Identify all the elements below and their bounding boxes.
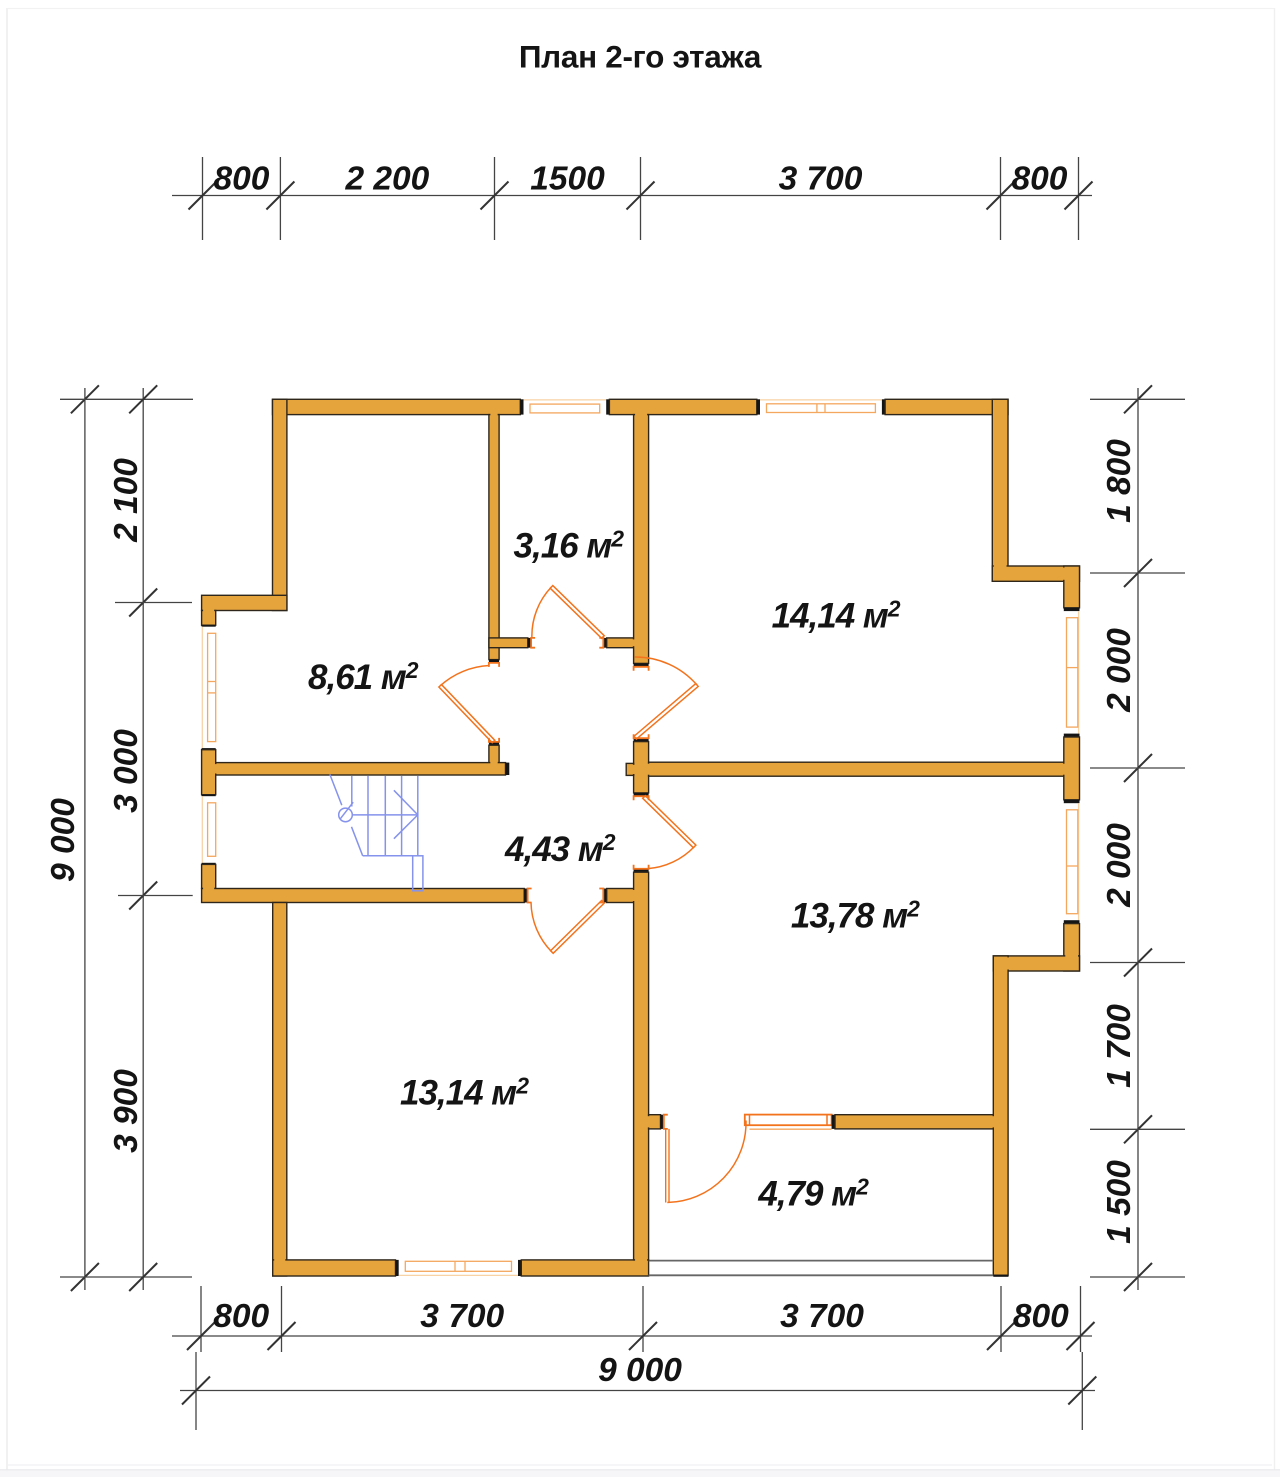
svg-text:13,14 м2: 13,14 м2	[400, 1072, 529, 1112]
svg-text:3 900: 3 900	[108, 1069, 145, 1153]
svg-text:3 000: 3 000	[108, 729, 145, 813]
svg-text:3 700: 3 700	[780, 1298, 864, 1335]
svg-text:3 700: 3 700	[779, 161, 863, 198]
svg-text:2 200: 2 200	[344, 161, 429, 198]
svg-text:800: 800	[1012, 161, 1068, 198]
svg-text:800: 800	[1013, 1298, 1069, 1335]
svg-text:4,43 м2: 4,43 м2	[504, 829, 616, 869]
svg-text:1 700: 1 700	[1101, 1004, 1138, 1088]
svg-text:8,61 м2: 8,61 м2	[308, 657, 419, 697]
svg-text:14,14 м2: 14,14 м2	[772, 596, 901, 636]
svg-text:2 000: 2 000	[1101, 823, 1138, 908]
svg-text:9 000: 9 000	[598, 1352, 682, 1389]
svg-text:2 000: 2 000	[1101, 628, 1138, 713]
svg-text:800: 800	[213, 161, 269, 198]
svg-text:1 500: 1 500	[1101, 1160, 1138, 1244]
svg-text:2 100: 2 100	[108, 458, 145, 543]
svg-text:1 800: 1 800	[1101, 439, 1138, 523]
svg-text:1500: 1500	[530, 161, 605, 198]
svg-text:4,79 м2: 4,79 м2	[757, 1174, 869, 1214]
svg-text:800: 800	[213, 1298, 269, 1335]
svg-text:3 700: 3 700	[420, 1298, 504, 1335]
svg-text:9 000: 9 000	[45, 798, 82, 882]
svg-text:План 2-го этажа: План 2-го этажа	[519, 39, 762, 75]
svg-text:3,16 м2: 3,16 м2	[514, 526, 625, 566]
svg-text:13,78 м2: 13,78 м2	[791, 896, 920, 936]
